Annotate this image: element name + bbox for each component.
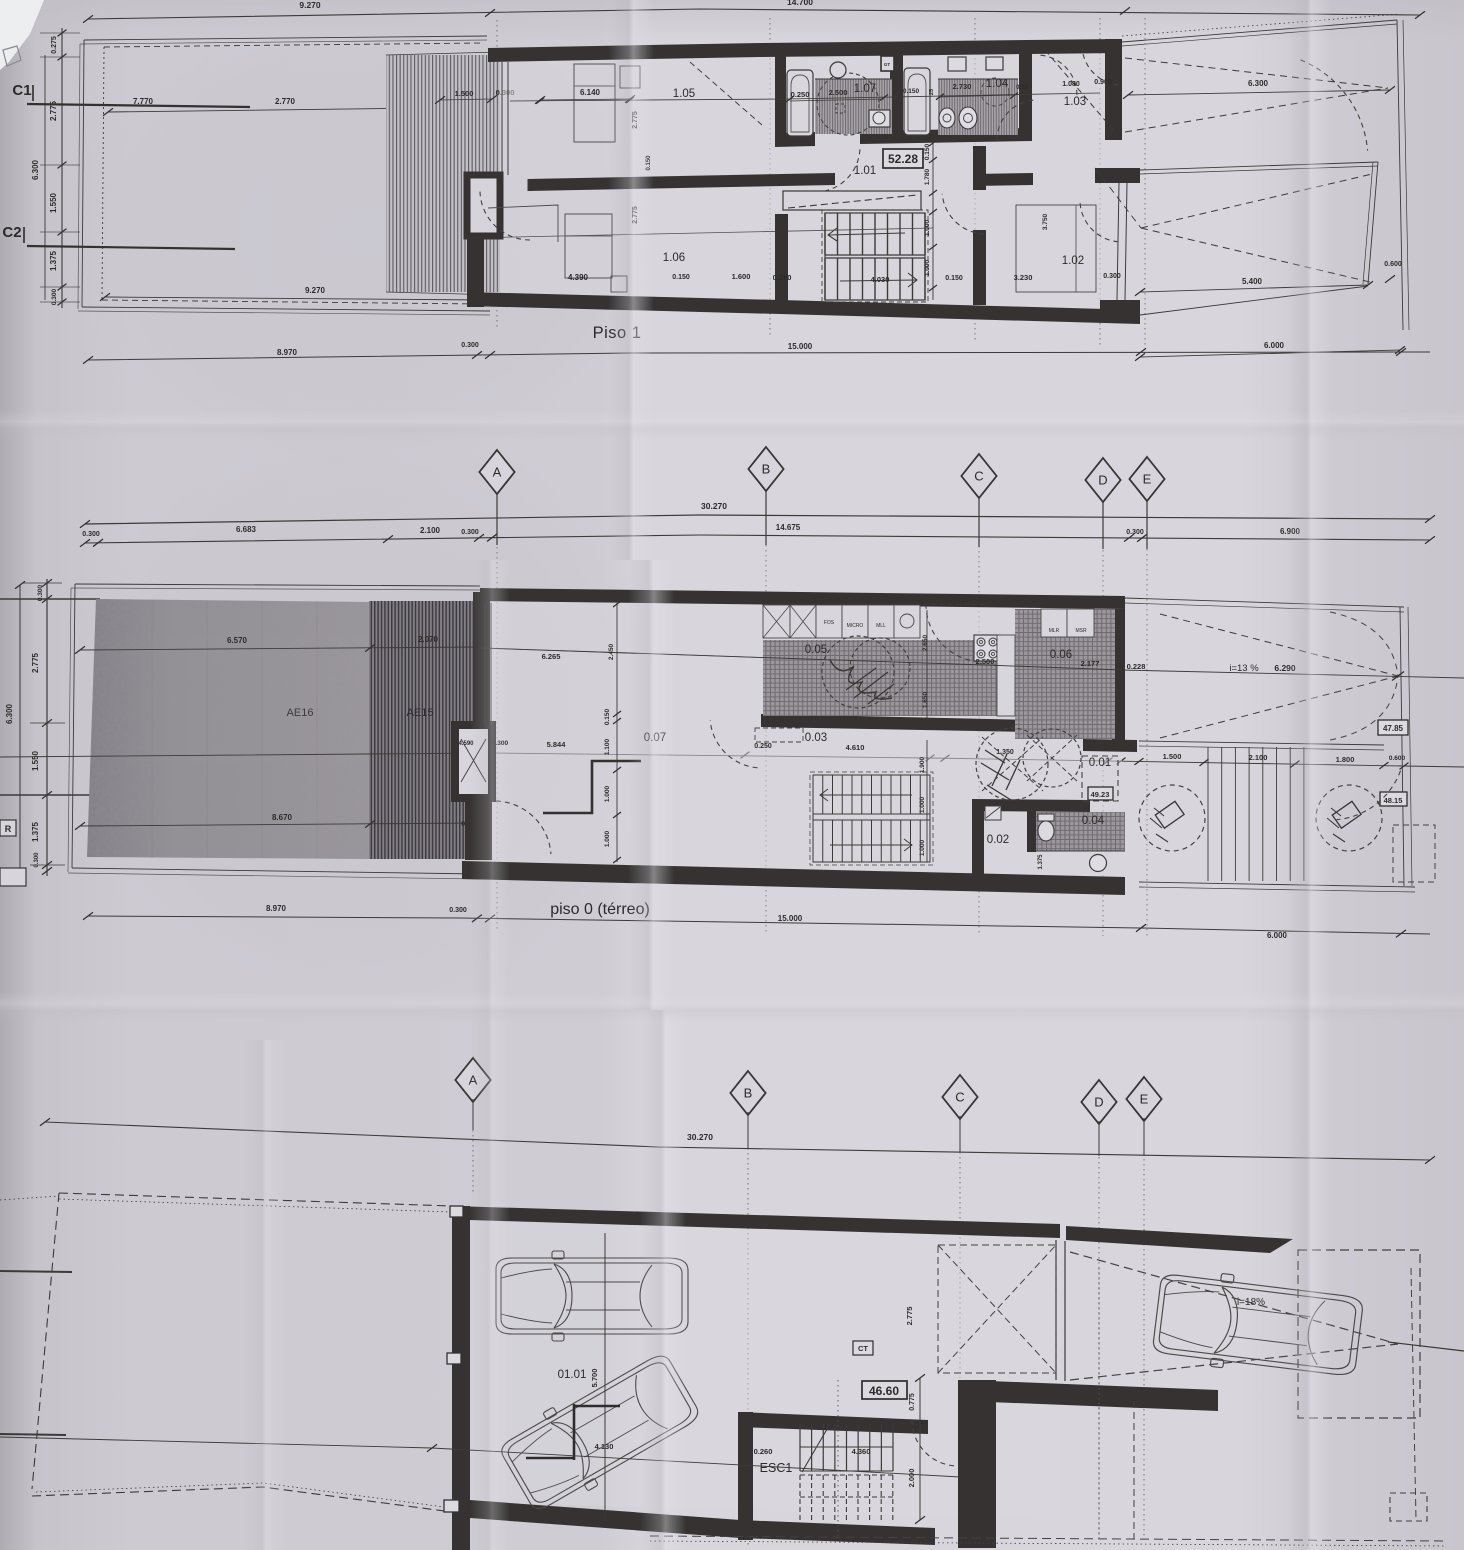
svg-text:0.300: 0.300 (461, 342, 479, 349)
svg-text:GT: GT (884, 62, 891, 67)
svg-text:48.15: 48.15 (1384, 796, 1403, 805)
svg-text:0.300: 0.300 (1103, 273, 1121, 280)
svg-text:0.03: 0.03 (805, 732, 827, 744)
svg-text:i=13 %: i=13 % (1229, 663, 1259, 674)
svg-text:R: R (5, 824, 12, 834)
svg-text:1.07: 1.07 (854, 83, 876, 95)
svg-text:ESC1: ESC1 (760, 1461, 793, 1475)
svg-text:C2: C2 (2, 224, 21, 241)
svg-text:2.775: 2.775 (31, 652, 40, 673)
svg-text:4.030: 4.030 (871, 275, 890, 284)
svg-text:9.270: 9.270 (299, 0, 321, 10)
svg-text:0.150: 0.150 (604, 708, 611, 725)
svg-text:0.250: 0.250 (754, 743, 772, 750)
svg-text:1.06: 1.06 (663, 252, 685, 264)
svg-text:B: B (744, 1086, 753, 1101)
svg-text:D: D (1098, 473, 1107, 488)
svg-text:1.650: 1.650 (922, 691, 929, 708)
svg-text:15.000: 15.000 (778, 914, 803, 923)
svg-text:0.300: 0.300 (51, 288, 58, 305)
svg-text:2.070: 2.070 (418, 635, 439, 644)
svg-text:30.270: 30.270 (701, 501, 727, 511)
svg-text:6.683: 6.683 (236, 525, 257, 534)
svg-text:C1: C1 (12, 82, 31, 99)
svg-text:1.000: 1.000 (604, 830, 611, 847)
svg-text:1.04: 1.04 (986, 78, 1009, 90)
svg-text:1.000: 1.000 (924, 219, 931, 236)
svg-text:4.610: 4.610 (846, 743, 865, 752)
svg-text:6.000: 6.000 (1267, 931, 1288, 940)
svg-text:1.350: 1.350 (996, 749, 1014, 756)
svg-text:MLR: MLR (1049, 628, 1060, 634)
svg-text:25: 25 (929, 89, 935, 95)
svg-text:47.85: 47.85 (1383, 724, 1404, 733)
svg-text:0.05: 0.05 (805, 644, 827, 656)
svg-text:0.260: 0.260 (754, 1447, 773, 1456)
svg-text:1.375: 1.375 (49, 250, 58, 271)
svg-text:52.28: 52.28 (888, 152, 918, 166)
svg-text:0.775: 0.775 (909, 1393, 916, 1411)
svg-text:0.300: 0.300 (449, 907, 467, 914)
svg-text:1.05: 1.05 (673, 88, 695, 100)
svg-text:6.570: 6.570 (227, 636, 248, 645)
svg-text:0.150: 0.150 (903, 88, 920, 95)
svg-text:AE15: AE15 (407, 707, 434, 719)
svg-text:0.300: 0.300 (1126, 529, 1144, 536)
svg-text:2.000: 2.000 (907, 1469, 916, 1488)
svg-text:2.100: 2.100 (420, 526, 441, 535)
svg-text:0.300: 0.300 (461, 529, 479, 536)
svg-text:8.670: 8.670 (272, 813, 293, 822)
svg-text:E: E (1143, 472, 1152, 487)
svg-text:6.000: 6.000 (1264, 341, 1285, 350)
svg-text:C: C (974, 469, 983, 484)
svg-text:1.600: 1.600 (732, 272, 751, 281)
svg-text:6.140: 6.140 (580, 88, 601, 97)
svg-text:0.01: 0.01 (1089, 757, 1111, 769)
svg-text:A: A (493, 465, 502, 480)
svg-text:1.100: 1.100 (604, 738, 611, 755)
svg-text:5.700: 5.700 (590, 1369, 599, 1388)
svg-text:0.600: 0.600 (1384, 261, 1402, 268)
svg-text:1.375: 1.375 (1038, 854, 1044, 870)
svg-text:1.550: 1.550 (31, 750, 40, 771)
svg-text:4.390: 4.390 (568, 273, 589, 282)
svg-text:0.300: 0.300 (37, 584, 44, 601)
svg-text:14.675: 14.675 (776, 523, 801, 532)
svg-text:46.60: 46.60 (869, 1384, 899, 1398)
svg-text:0.15: 0.15 (1016, 85, 1028, 91)
svg-text:0.150: 0.150 (672, 274, 690, 281)
svg-text:4.360: 4.360 (852, 1447, 871, 1456)
svg-text:1.000: 1.000 (924, 259, 931, 276)
svg-text:0.275: 0.275 (51, 36, 58, 54)
svg-text:0.300: 0.300 (34, 852, 40, 868)
svg-text:0.250: 0.250 (773, 273, 792, 282)
svg-text:14.700: 14.700 (787, 0, 813, 7)
svg-text:2.775: 2.775 (905, 1307, 914, 1326)
svg-text:1.375: 1.375 (31, 821, 40, 842)
svg-text:2.500: 2.500 (829, 88, 848, 97)
svg-text:4.130: 4.130 (595, 1442, 614, 1451)
svg-text:1.080: 1.080 (1062, 81, 1080, 88)
svg-text:15.000: 15.000 (788, 342, 813, 351)
svg-text:2.730: 2.730 (953, 82, 972, 91)
svg-text:0.600: 0.600 (1389, 755, 1406, 762)
svg-text:30.270: 30.270 (687, 1132, 713, 1142)
svg-text:1.02: 1.02 (1062, 255, 1084, 267)
svg-text:0.900: 0.900 (1094, 79, 1112, 86)
svg-text:0.300: 0.300 (82, 531, 100, 538)
svg-text:6.265: 6.265 (542, 652, 561, 661)
svg-text:C: C (955, 1090, 964, 1105)
svg-text:5.400: 5.400 (1242, 277, 1263, 286)
svg-text:1.550: 1.550 (49, 192, 58, 213)
svg-text:0.150: 0.150 (945, 275, 963, 282)
svg-text:0.04: 0.04 (1082, 815, 1105, 827)
svg-text:1.780: 1.780 (924, 168, 931, 185)
svg-text:FOS: FOS (824, 620, 835, 626)
svg-text:i=18%: i=18% (1237, 1297, 1265, 1308)
svg-text:2.770: 2.770 (275, 97, 296, 106)
svg-text:1.01: 1.01 (854, 165, 876, 177)
svg-text:9.270: 9.270 (305, 286, 326, 295)
svg-text:E: E (1140, 1092, 1149, 1107)
svg-text:1.03: 1.03 (1064, 96, 1086, 108)
svg-text:8.970: 8.970 (266, 904, 287, 913)
svg-text:1.500: 1.500 (1163, 752, 1182, 761)
svg-text:AE16: AE16 (287, 707, 314, 719)
svg-text:7.770: 7.770 (133, 97, 154, 106)
svg-text:0.02: 0.02 (987, 834, 1009, 846)
svg-text:0.06: 0.06 (1050, 649, 1072, 661)
svg-text:3.230: 3.230 (1014, 273, 1033, 282)
svg-text:8.970: 8.970 (277, 348, 298, 357)
svg-text:MICRO: MICRO (847, 623, 864, 629)
svg-text:2.650: 2.650 (922, 634, 929, 651)
svg-text:MLL: MLL (876, 623, 886, 629)
svg-text:0.228: 0.228 (1127, 662, 1146, 671)
svg-text:1.500: 1.500 (455, 89, 474, 98)
svg-text:B: B (762, 462, 771, 477)
svg-text:6.300: 6.300 (31, 159, 40, 180)
svg-text:1.900: 1.900 (919, 756, 926, 773)
svg-text:MSR: MSR (1075, 628, 1087, 634)
svg-text:2.450: 2.450 (608, 643, 615, 660)
svg-text:3.750: 3.750 (1042, 213, 1049, 230)
svg-text:5.844: 5.844 (547, 740, 567, 749)
svg-text:01.01: 01.01 (558, 1369, 587, 1381)
svg-text:D: D (1094, 1095, 1103, 1110)
svg-text:6.300: 6.300 (1248, 79, 1269, 88)
svg-text:1.000: 1.000 (604, 785, 611, 802)
svg-text:6.300: 6.300 (5, 703, 14, 724)
svg-text:CT: CT (858, 1344, 868, 1353)
svg-text:1.800: 1.800 (1336, 755, 1355, 764)
svg-text:0.250: 0.250 (791, 90, 810, 99)
svg-text:2.100: 2.100 (1249, 753, 1268, 762)
svg-text:49.23: 49.23 (1091, 790, 1110, 799)
svg-text:2.177: 2.177 (1081, 659, 1100, 668)
